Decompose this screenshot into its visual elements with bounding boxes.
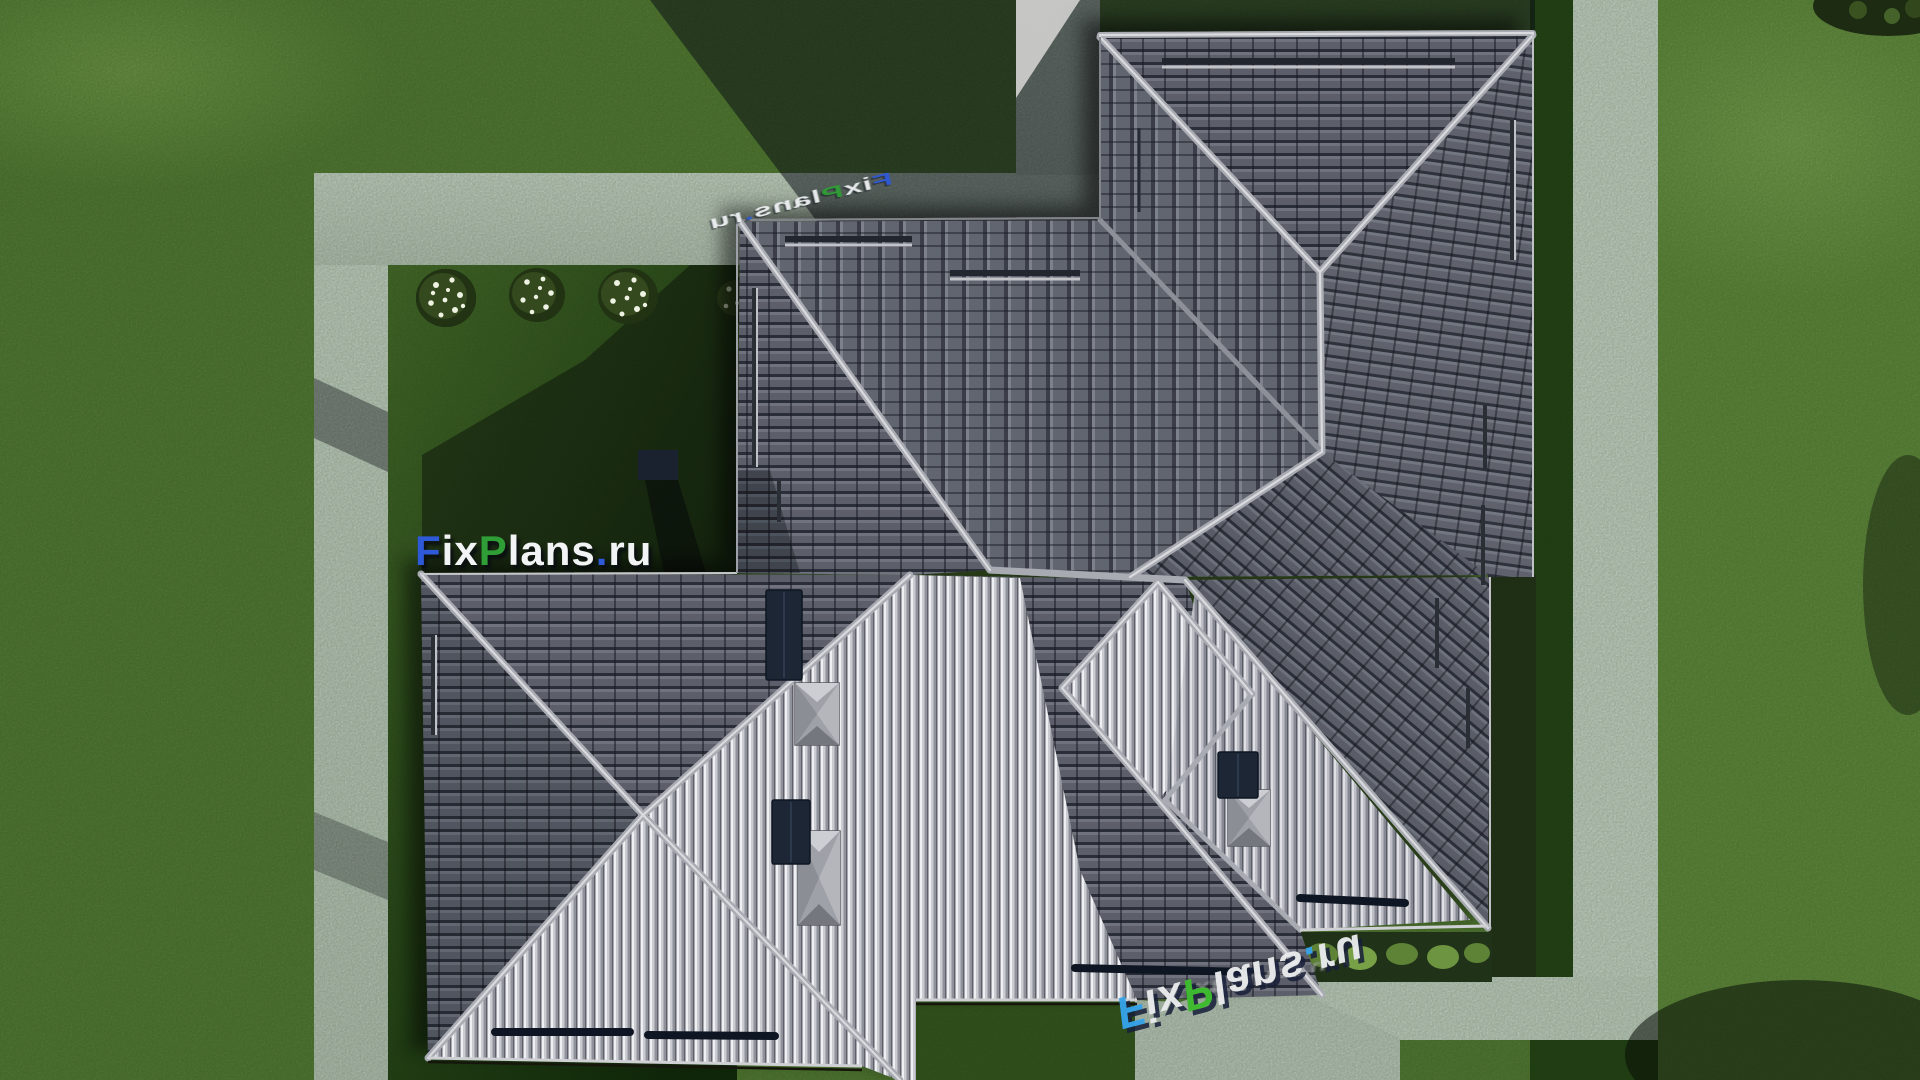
east-eave-shadow-strip: [1488, 575, 1536, 977]
watermark-letter: F: [415, 527, 442, 575]
watermark-letter: u: [626, 527, 653, 575]
watermark-letter: P: [479, 527, 508, 575]
aerial-roof-render: FixPlans.ru FixPlans.ru FixPlans.ru FixP…: [0, 0, 1920, 1080]
watermark-letter: n: [545, 527, 572, 575]
shrub: [509, 268, 565, 322]
watermark-letter: u: [1332, 922, 1366, 981]
watermark-letter: .: [596, 527, 609, 575]
shrub: [416, 269, 476, 327]
watermark-letter: a: [520, 527, 544, 575]
watermark-letter: r: [608, 527, 625, 575]
chimney: [795, 683, 839, 745]
shrub: [598, 268, 658, 324]
watermark-letter: i: [442, 527, 455, 575]
watermark-letter: x: [454, 527, 478, 575]
watermark-fixplans-main: FixPlans.ru: [415, 527, 652, 575]
scene-canvas: [0, 0, 1920, 1080]
chimney-box-yard: [638, 450, 678, 480]
watermark-letter: s: [571, 527, 595, 575]
watermark-letter: l: [508, 527, 521, 575]
